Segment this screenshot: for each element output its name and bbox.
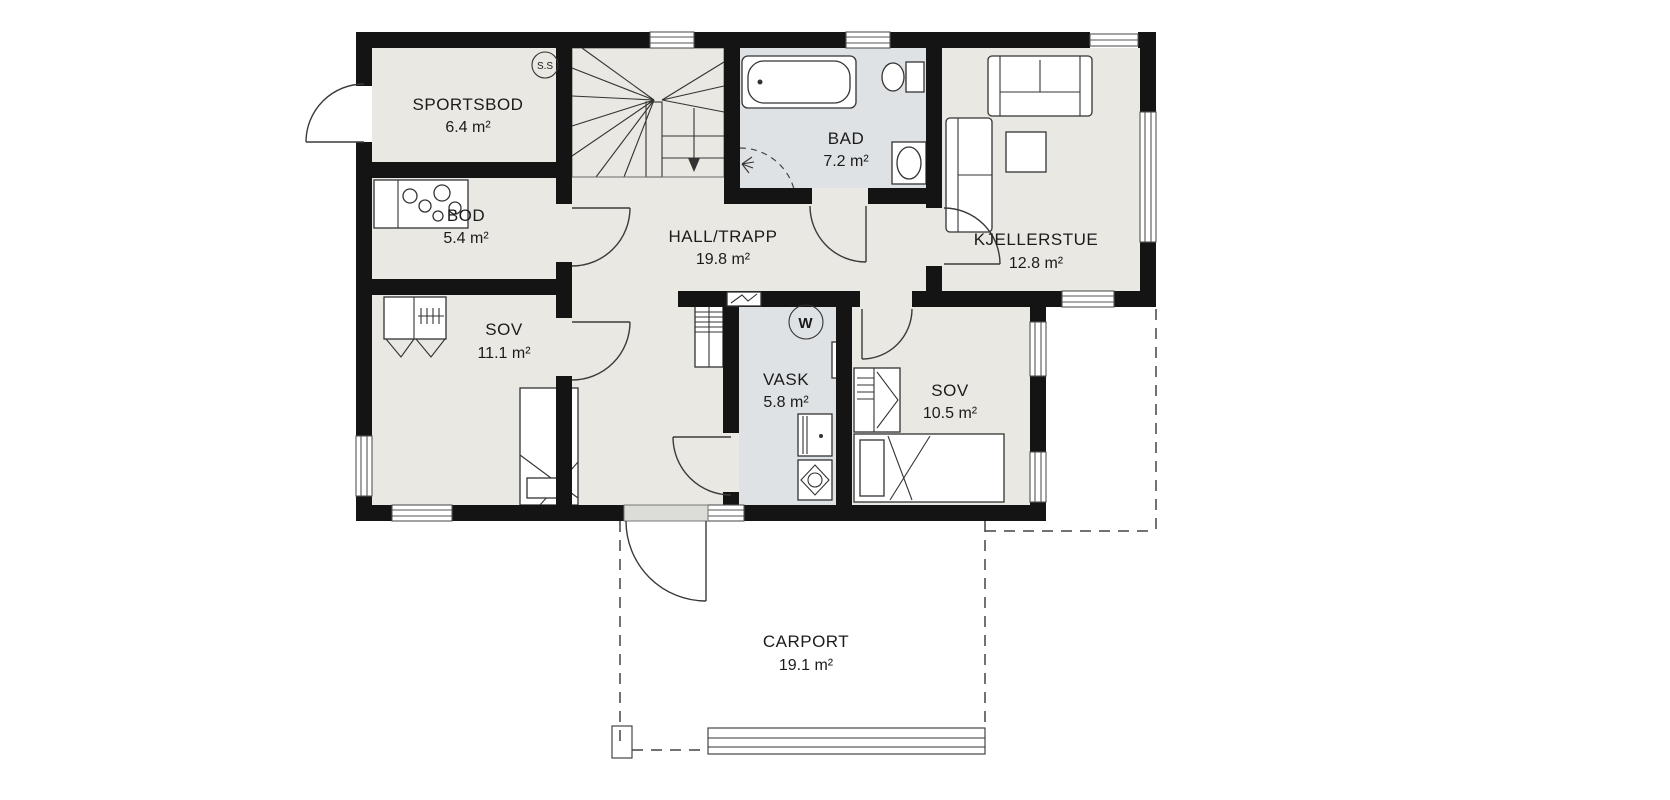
svg-text:VASK: VASK xyxy=(763,370,809,389)
window-kjellerstue-east xyxy=(1140,112,1156,242)
door-sportsbod-exterior xyxy=(306,84,364,142)
svg-text:BAD: BAD xyxy=(828,129,864,148)
svg-text:SOV: SOV xyxy=(485,320,523,339)
section-marker-label: S.S xyxy=(537,61,553,72)
svg-text:12.8 m²: 12.8 m² xyxy=(1009,255,1064,272)
room-label-carport: CARPORT 19.1 m² xyxy=(763,632,849,674)
window-top-1 xyxy=(650,32,694,48)
electrical-panel xyxy=(727,292,761,306)
window-left xyxy=(356,436,372,496)
carport-post xyxy=(612,726,632,758)
window-sov2-east-2 xyxy=(1030,452,1046,502)
bathtub xyxy=(742,56,856,108)
svg-text:SPORTSBOD: SPORTSBOD xyxy=(413,95,524,114)
svg-text:7.2 m²: 7.2 m² xyxy=(823,153,869,170)
floor-plan-drawing: S.S W SPORTSBOD 6.4 m² BOD 5.4 m² xyxy=(0,0,1670,800)
side-table xyxy=(1006,132,1046,172)
svg-text:5.8 m²: 5.8 m² xyxy=(763,394,809,411)
svg-text:KJELLERSTUE: KJELLERSTUE xyxy=(974,230,1099,249)
svg-text:SOV: SOV xyxy=(931,381,969,400)
svg-text:6.4 m²: 6.4 m² xyxy=(445,119,491,136)
bathroom-sink xyxy=(892,142,926,184)
svg-text:BOD: BOD xyxy=(447,206,485,225)
wardrobe-sov2 xyxy=(854,368,900,432)
washing-machine xyxy=(798,414,832,456)
window-top-2 xyxy=(846,32,890,48)
floor-sink xyxy=(798,460,832,500)
bed-sov2 xyxy=(854,434,1004,502)
svg-text:5.4 m²: 5.4 m² xyxy=(443,230,489,247)
window-entry-sidelight xyxy=(708,505,744,521)
svg-text:19.1 m²: 19.1 m² xyxy=(779,657,834,674)
svg-text:HALL/TRAPP: HALL/TRAPP xyxy=(669,227,778,246)
carport-back-wall xyxy=(708,728,985,754)
door-main-entrance xyxy=(624,505,708,601)
water-heater-label: W xyxy=(798,315,813,332)
svg-text:19.8 m²: 19.8 m² xyxy=(696,251,751,268)
floor-plan-page: S.S W SPORTSBOD 6.4 m² BOD 5.4 m² xyxy=(0,0,1670,800)
window-kjellerstue-south xyxy=(1062,291,1114,307)
svg-text:10.5 m²: 10.5 m² xyxy=(923,405,978,422)
hall-cabinet xyxy=(695,305,723,367)
window-top-corner xyxy=(1090,34,1138,46)
svg-text:CARPORT: CARPORT xyxy=(763,632,849,651)
window-sov2-east-1 xyxy=(1030,322,1046,376)
window-bottom-sov1 xyxy=(392,505,452,521)
svg-text:11.1 m²: 11.1 m² xyxy=(477,345,531,362)
